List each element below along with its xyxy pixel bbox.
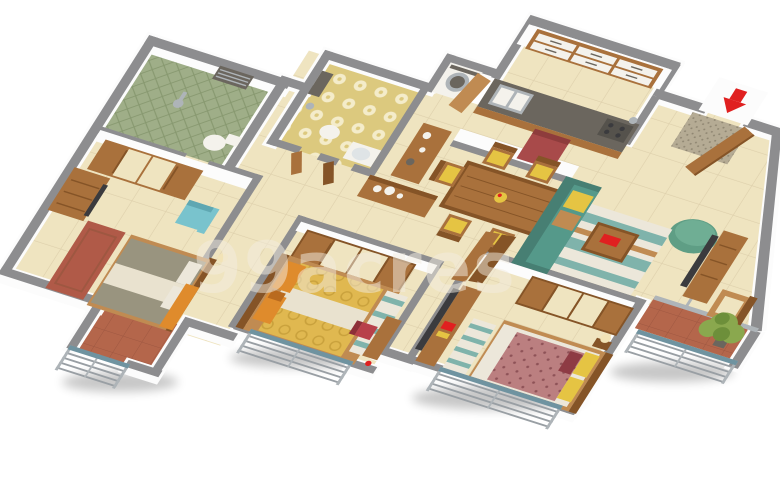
watermark-text: 99acres <box>193 227 517 309</box>
floor-plan-render: 99acres <box>0 0 780 490</box>
